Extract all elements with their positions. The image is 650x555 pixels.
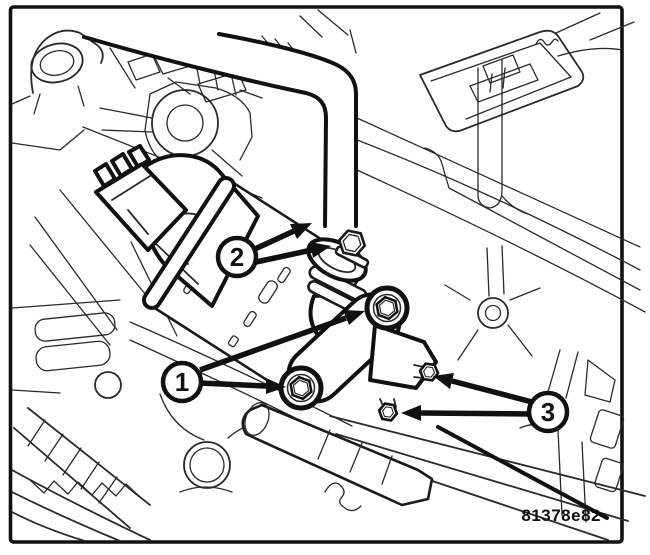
callout-1: 1 [163, 363, 201, 401]
upper-bracket-bolt [367, 288, 407, 328]
service-manual-illustration: 1 2 3 81378e82 [0, 0, 650, 555]
callout-3-label: 3 [541, 397, 555, 427]
callout-1-label: 1 [175, 367, 189, 397]
lower-bracket-bolt [281, 368, 321, 408]
figure-code: 81378e82 [521, 506, 601, 525]
callout-2-label: 2 [230, 242, 244, 272]
technical-diagram: 1 2 3 81378e82 [0, 0, 650, 555]
callout-2: 2 [218, 238, 256, 276]
callout-3: 3 [529, 393, 567, 431]
